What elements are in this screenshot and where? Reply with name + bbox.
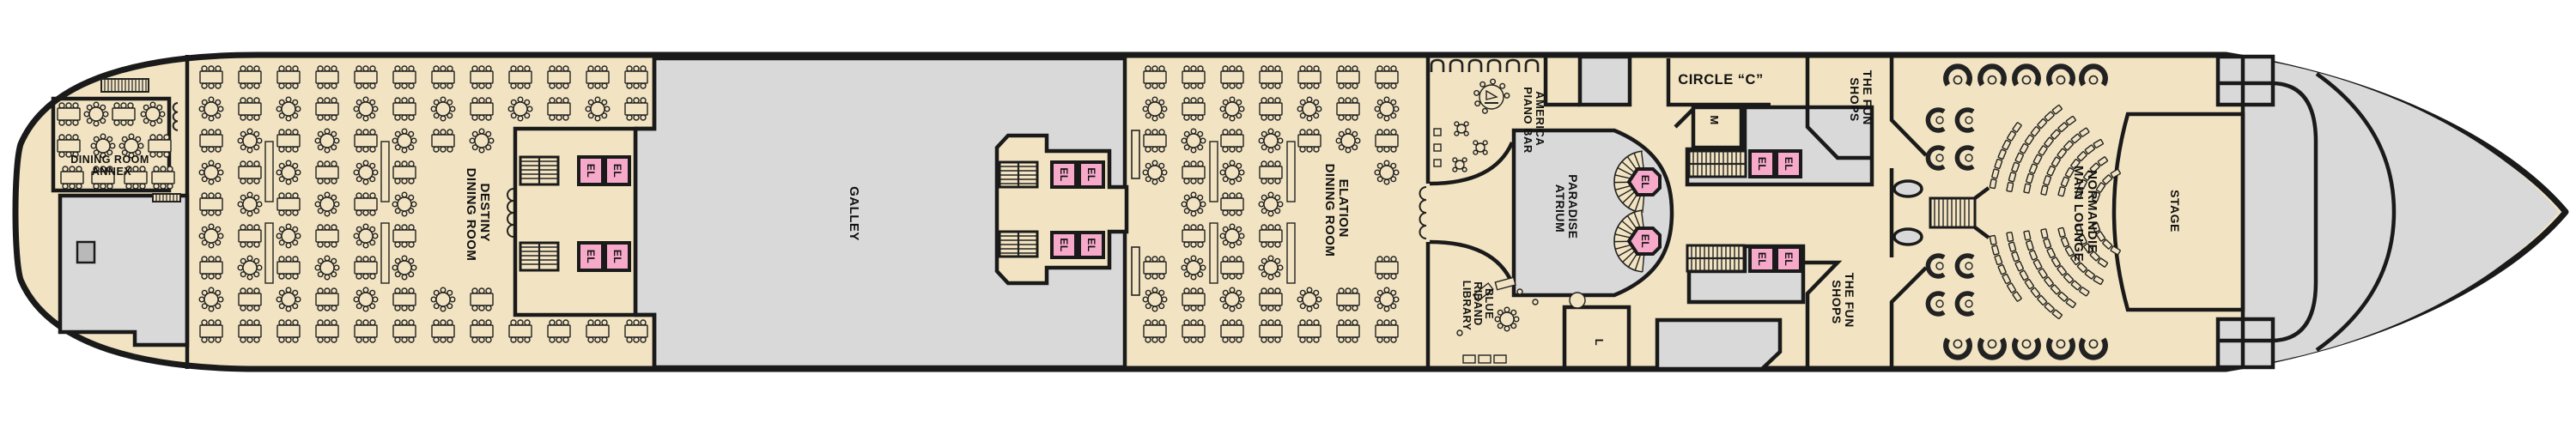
chair xyxy=(1261,225,1267,230)
chair xyxy=(209,210,214,215)
chair xyxy=(370,320,375,325)
chair xyxy=(1223,320,1228,325)
theater-seat xyxy=(2007,233,2014,242)
vent-hatch xyxy=(101,79,149,92)
chair xyxy=(1339,337,1344,342)
chair xyxy=(595,83,600,88)
chair xyxy=(1384,320,1389,325)
chair xyxy=(1152,306,1157,311)
chair xyxy=(1184,98,1189,103)
table-rect xyxy=(239,288,261,311)
chair xyxy=(100,184,106,189)
chair xyxy=(160,112,165,117)
chair xyxy=(409,225,414,230)
shelf-table xyxy=(1494,355,1506,363)
planter-oval xyxy=(1894,181,1922,196)
table-rect xyxy=(432,130,454,152)
stage-side-block-bottom xyxy=(2218,319,2273,367)
chair xyxy=(1184,242,1189,247)
chair xyxy=(363,224,368,229)
table-rect xyxy=(1260,98,1282,120)
chair xyxy=(59,103,64,108)
table xyxy=(277,262,300,274)
table xyxy=(1225,102,1239,116)
table xyxy=(1376,325,1398,337)
table xyxy=(359,166,373,179)
chair xyxy=(202,257,207,262)
elevator-label: EL xyxy=(1085,238,1097,251)
chair xyxy=(247,115,252,120)
service-block-bottom xyxy=(1657,320,1780,369)
chair xyxy=(254,178,259,184)
chair xyxy=(1339,305,1344,311)
chair xyxy=(402,83,407,88)
chair xyxy=(293,257,298,262)
chair xyxy=(1394,170,1399,175)
chair xyxy=(70,166,75,172)
chair xyxy=(1152,160,1157,166)
chair xyxy=(356,66,361,71)
chair xyxy=(1191,320,1196,325)
elevator-label: EL xyxy=(1639,234,1651,248)
chair xyxy=(1162,106,1167,112)
elevator-label: EL xyxy=(1756,157,1768,171)
table-rect xyxy=(625,98,647,120)
chair xyxy=(199,233,204,239)
chair xyxy=(627,83,632,88)
chair xyxy=(1152,130,1157,135)
table-rect xyxy=(1298,130,1321,152)
elevator-label: EL xyxy=(585,164,597,178)
chair xyxy=(216,210,221,215)
chair xyxy=(1261,178,1267,184)
chair xyxy=(279,83,284,88)
table xyxy=(1380,293,1394,306)
chair xyxy=(363,66,368,71)
table-rect xyxy=(1182,320,1205,342)
service-room-aft xyxy=(60,196,187,345)
table xyxy=(393,293,416,305)
chair xyxy=(1346,305,1351,311)
chair xyxy=(440,337,446,342)
chair xyxy=(450,106,455,112)
chair xyxy=(202,130,207,135)
chair xyxy=(373,233,378,239)
chair xyxy=(1314,83,1319,88)
table xyxy=(1264,261,1278,275)
ladies-room-label: L xyxy=(1593,339,1606,346)
chair xyxy=(550,83,555,88)
chair xyxy=(293,193,298,198)
chair xyxy=(486,115,491,120)
table-rect xyxy=(586,66,609,88)
chair xyxy=(247,337,252,342)
chair xyxy=(279,147,284,152)
chair xyxy=(1268,148,1273,153)
piano-stool xyxy=(1480,82,1485,87)
cocktail-table xyxy=(1455,122,1468,136)
chair xyxy=(1230,83,1235,88)
table-rect xyxy=(1144,130,1166,152)
table-round xyxy=(1375,97,1399,121)
chair xyxy=(1391,274,1396,279)
chair xyxy=(409,178,414,184)
table xyxy=(239,293,261,305)
chair xyxy=(440,66,446,71)
table xyxy=(1376,71,1398,83)
chair xyxy=(1275,337,1280,342)
table xyxy=(436,293,450,306)
chair xyxy=(1145,257,1151,262)
chair xyxy=(286,320,291,325)
chair xyxy=(1352,83,1358,88)
chair xyxy=(395,337,400,342)
chair xyxy=(1223,130,1228,135)
chair xyxy=(325,242,330,247)
table-rect xyxy=(200,193,222,215)
chair xyxy=(1184,66,1189,71)
chair xyxy=(479,98,484,103)
chair xyxy=(595,97,600,102)
chair xyxy=(1377,337,1382,342)
chair xyxy=(1230,116,1235,121)
table-round xyxy=(354,97,378,121)
chair xyxy=(254,66,259,71)
table-round xyxy=(276,224,301,248)
table-round xyxy=(354,287,378,311)
chair xyxy=(1191,275,1196,280)
chair xyxy=(334,138,339,143)
chair xyxy=(1236,257,1242,262)
chair xyxy=(556,320,562,325)
chair xyxy=(331,98,337,103)
elevator: EL xyxy=(1750,151,1774,177)
table xyxy=(1182,325,1205,337)
chair xyxy=(595,116,600,121)
elevator-label: EL xyxy=(585,250,597,263)
table-round xyxy=(392,256,416,280)
table xyxy=(625,325,647,337)
table-rect xyxy=(112,103,135,125)
planter xyxy=(1570,293,1585,308)
chair xyxy=(331,115,337,120)
booth-table xyxy=(1936,117,1943,124)
booth-table xyxy=(1953,76,1961,84)
chair xyxy=(254,320,259,325)
chair xyxy=(325,98,330,103)
chair xyxy=(286,83,291,88)
elevator-label: EL xyxy=(1756,252,1768,266)
table-round xyxy=(1220,97,1244,121)
table xyxy=(1182,230,1205,242)
chair xyxy=(1384,83,1389,88)
chair xyxy=(1316,297,1321,302)
chair xyxy=(489,138,494,143)
table xyxy=(355,135,377,147)
table-rect xyxy=(1221,320,1243,342)
chair xyxy=(402,178,407,184)
chair xyxy=(1191,129,1196,134)
table-rect xyxy=(432,66,454,88)
chair xyxy=(1198,161,1203,166)
chair xyxy=(1191,98,1196,103)
chair xyxy=(59,152,64,157)
theater-seat xyxy=(2024,231,2031,240)
chair xyxy=(1182,202,1187,207)
chair xyxy=(486,98,491,103)
chair xyxy=(247,66,252,71)
chair xyxy=(363,179,368,184)
chair xyxy=(1384,306,1389,311)
chair xyxy=(363,243,368,248)
chair xyxy=(1352,320,1358,325)
chair xyxy=(1198,305,1203,311)
chair xyxy=(240,161,246,166)
chair xyxy=(363,83,368,88)
table-round xyxy=(354,224,378,248)
chair xyxy=(121,120,126,125)
serving-station xyxy=(1210,142,1218,202)
chair xyxy=(472,115,477,120)
chair xyxy=(588,320,593,325)
shelf-table xyxy=(1463,355,1475,363)
side-table xyxy=(1434,129,1441,136)
chair xyxy=(1352,98,1358,103)
table-rect xyxy=(1182,161,1205,184)
chair xyxy=(240,320,246,325)
chair xyxy=(286,179,291,184)
chair xyxy=(627,320,632,325)
chair xyxy=(1230,210,1235,215)
chair xyxy=(318,66,323,71)
chair xyxy=(1191,225,1196,230)
chair xyxy=(209,66,214,71)
chair xyxy=(1143,170,1148,175)
serving-station xyxy=(265,142,273,202)
chair xyxy=(247,129,252,134)
chair xyxy=(479,288,484,293)
chair xyxy=(1339,288,1344,293)
chair xyxy=(1352,337,1358,342)
chair xyxy=(1375,297,1380,302)
theater-seat xyxy=(1990,235,1996,245)
chair xyxy=(1339,98,1344,103)
chair xyxy=(293,147,298,152)
chair xyxy=(1300,130,1305,135)
chair xyxy=(1184,225,1189,230)
chair xyxy=(1198,337,1203,342)
table xyxy=(471,103,493,115)
table-round xyxy=(199,287,223,311)
chair xyxy=(257,265,262,270)
chair xyxy=(1307,147,1312,152)
chair xyxy=(286,130,291,135)
chair xyxy=(216,83,221,88)
table-rect xyxy=(471,66,493,88)
chair xyxy=(1191,161,1196,166)
chair xyxy=(595,337,600,342)
chair xyxy=(1200,202,1206,207)
chair xyxy=(1259,265,1264,270)
booth-table xyxy=(1953,340,1961,347)
table-rect xyxy=(1260,288,1282,311)
table xyxy=(1144,135,1166,147)
table xyxy=(355,325,377,337)
chair xyxy=(331,66,337,71)
table xyxy=(393,325,416,337)
chair xyxy=(525,337,530,342)
chair xyxy=(595,66,600,71)
chair xyxy=(94,184,99,189)
table xyxy=(1298,325,1321,337)
chair xyxy=(1384,97,1389,102)
chair xyxy=(486,66,491,71)
chair xyxy=(1268,83,1273,88)
chair xyxy=(434,147,439,152)
chair xyxy=(1391,337,1396,342)
service-block-top xyxy=(1580,57,1630,105)
chair xyxy=(395,288,400,293)
chair xyxy=(1198,83,1203,88)
chair xyxy=(354,297,359,302)
chair xyxy=(1307,337,1312,342)
chair xyxy=(240,337,246,342)
table-rect xyxy=(1221,66,1243,88)
table-round xyxy=(431,97,455,121)
chair xyxy=(1384,116,1389,121)
chair xyxy=(1230,337,1235,342)
chair xyxy=(1191,115,1196,120)
chair xyxy=(209,147,214,152)
chair xyxy=(395,98,400,103)
circle-c-label: CIRCLE “C” xyxy=(1678,72,1763,88)
chair xyxy=(363,257,368,262)
chair xyxy=(395,242,400,247)
chair xyxy=(1239,170,1244,175)
chair xyxy=(411,138,416,143)
elevator-label: EL xyxy=(1783,252,1795,266)
elevator: EL xyxy=(1079,233,1103,257)
chair xyxy=(114,120,119,125)
table-rect xyxy=(1376,257,1398,279)
chair xyxy=(1314,320,1319,325)
table xyxy=(1260,166,1282,178)
chair xyxy=(107,184,112,189)
table-rect xyxy=(1298,66,1321,88)
chair xyxy=(1259,202,1264,207)
chair xyxy=(402,211,407,216)
chair xyxy=(527,106,532,112)
table-rect xyxy=(393,225,416,247)
table xyxy=(591,102,605,116)
chair xyxy=(586,106,591,112)
table xyxy=(96,139,110,153)
chair xyxy=(508,106,513,112)
chair xyxy=(119,143,125,148)
elevator: EL xyxy=(579,157,603,184)
table-rect xyxy=(625,66,647,88)
chair xyxy=(1261,242,1267,247)
table xyxy=(1225,166,1239,179)
elevator: EL xyxy=(605,157,629,184)
table-round xyxy=(392,129,416,153)
table xyxy=(112,108,135,120)
chair xyxy=(402,129,407,134)
table xyxy=(1144,325,1166,337)
chair xyxy=(110,143,115,148)
chair xyxy=(363,97,368,102)
piano-stool xyxy=(1475,101,1480,106)
chair xyxy=(402,66,407,71)
chair xyxy=(279,210,284,215)
booth-table xyxy=(1936,154,1943,161)
table xyxy=(355,198,377,210)
chair xyxy=(479,66,484,71)
table xyxy=(1225,229,1239,243)
chair xyxy=(1352,305,1358,311)
chair xyxy=(331,288,337,293)
chair xyxy=(325,211,330,216)
chair xyxy=(373,297,378,302)
table-round xyxy=(1143,160,1167,184)
elevator: EL xyxy=(1052,162,1076,187)
chair xyxy=(1261,288,1267,293)
chair xyxy=(1268,211,1273,216)
chair xyxy=(1394,297,1399,302)
chair xyxy=(138,143,143,148)
chair xyxy=(595,320,600,325)
table xyxy=(239,103,261,115)
table xyxy=(393,230,416,242)
table-round xyxy=(199,224,223,248)
table xyxy=(1148,102,1162,116)
chair xyxy=(641,98,646,103)
table-round xyxy=(1375,287,1399,311)
chair xyxy=(1268,288,1273,293)
chair xyxy=(257,138,262,143)
chair xyxy=(1275,83,1280,88)
chair xyxy=(450,297,455,302)
chair xyxy=(1275,178,1280,184)
elevator: EL xyxy=(579,243,603,270)
table xyxy=(200,262,222,274)
chair xyxy=(1275,225,1280,230)
chair xyxy=(325,256,330,261)
chair xyxy=(511,83,516,88)
chair xyxy=(1182,265,1187,270)
chair xyxy=(254,337,259,342)
chair xyxy=(1198,288,1203,293)
chair xyxy=(1220,297,1225,302)
chair xyxy=(395,161,400,166)
table-rect xyxy=(316,225,338,247)
chair xyxy=(154,166,159,172)
chair xyxy=(440,97,446,102)
chair xyxy=(209,130,214,135)
chair xyxy=(411,202,416,207)
chair xyxy=(1191,305,1196,311)
chair xyxy=(1375,170,1380,175)
chair xyxy=(209,337,214,342)
chair xyxy=(286,147,291,152)
chair xyxy=(94,102,99,107)
chair xyxy=(150,102,155,107)
chair xyxy=(199,297,204,302)
chair xyxy=(218,170,223,175)
table xyxy=(1221,325,1243,337)
chair xyxy=(129,134,134,139)
chair xyxy=(1230,320,1235,325)
